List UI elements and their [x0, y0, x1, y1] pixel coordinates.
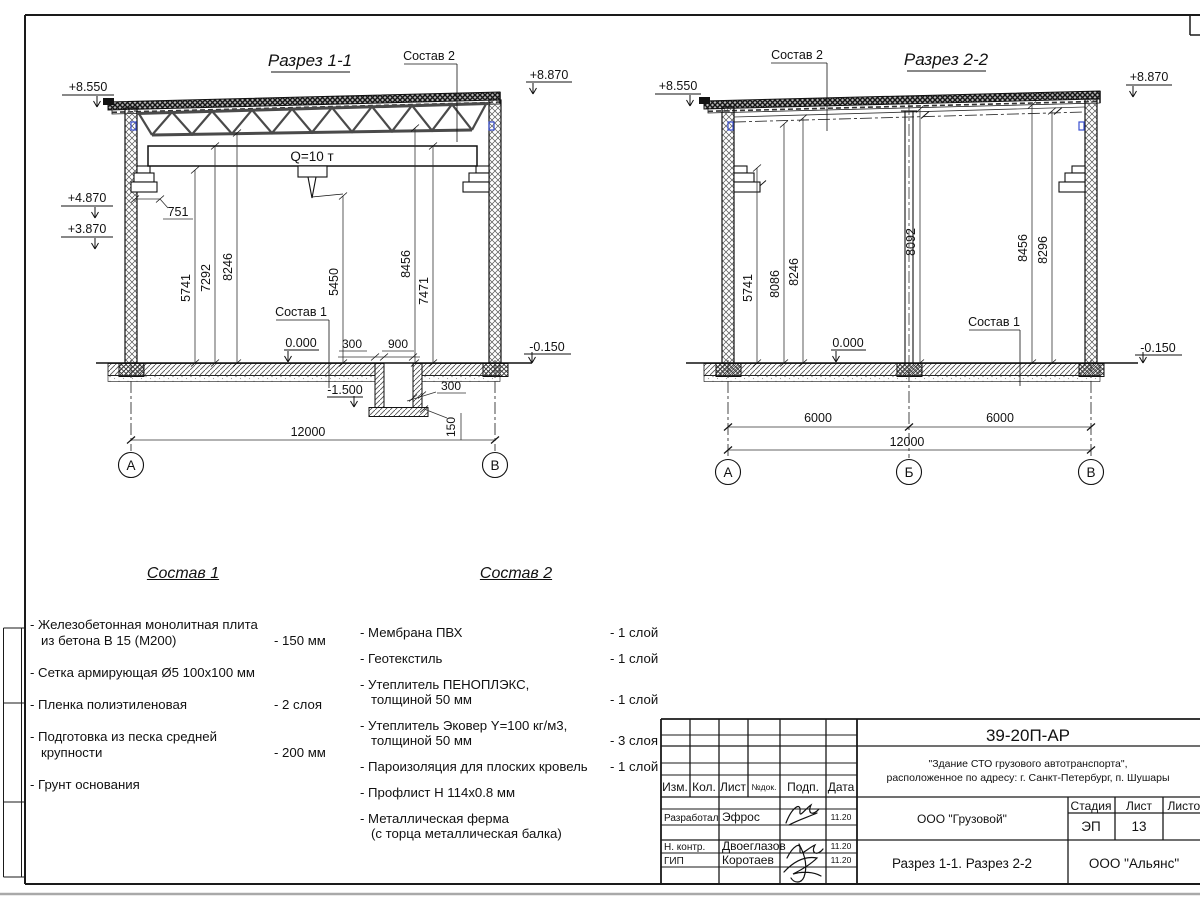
object-name-line1: "Здание СТО грузового автотранспорта",: [928, 758, 1127, 770]
section2-title: Разрез 2-2: [904, 50, 989, 69]
s2-dim-8086: 8086: [768, 270, 782, 298]
s1-dim-12000: 12000: [291, 425, 326, 439]
legend2-item-4: - Утеплитель Эковер Y=100 кг/м3,толщиной…: [360, 718, 672, 748]
s1-dim-8456: 8456: [399, 250, 413, 278]
legend1-item-2: - Сетка армирующая Ø5 100х100 мм: [30, 665, 336, 681]
company-name: ООО "Грузовой": [917, 812, 1007, 826]
row1-role: Разработал: [664, 812, 719, 824]
s1-elev-8550: +8.550: [69, 80, 108, 94]
s2-elev-8870: +8.870: [1130, 70, 1169, 84]
s1-axis-B: В: [490, 458, 499, 473]
floor-s1: [96, 363, 532, 382]
legend1-item-3: - Пленка полиэтиленовая - 2 слоя: [30, 697, 336, 713]
section-1-1-drawing: Разрез 1-1 Состав 2 Состав 1 Q=10 т +8.5…: [61, 49, 572, 478]
legend2-item-6: - Профлист Н 114х0.8 мм: [360, 785, 672, 800]
s1-elev-minus1500: -1.500: [327, 383, 362, 397]
s1-dim-900: 900: [388, 337, 408, 351]
s1-dim-8246: 8246: [221, 253, 235, 281]
roof-end-cap: [103, 98, 114, 105]
row2-name: Двоеглазов: [722, 839, 786, 853]
footing-mid-s2: [897, 364, 922, 377]
legend2-item-5: - Пароизоляция для плоских кровель - 1 с…: [360, 759, 672, 774]
footing-A: [119, 364, 144, 377]
row1-name: Эфрос: [722, 810, 760, 824]
legend2-item-1: - Мембрана ПВХ - 1 слой: [360, 625, 672, 640]
roof-end-cap-s2: [699, 97, 710, 104]
s1-elev-8870: +8.870: [530, 68, 569, 82]
s1-elev-4870: +4.870: [68, 191, 107, 205]
row3-date: 11.20: [831, 855, 852, 865]
footing-A-s2: [716, 364, 741, 377]
row3-role: ГИП: [664, 856, 684, 867]
col-header-kol: Кол.: [692, 780, 716, 794]
s1-elev-zero: 0.000: [285, 336, 316, 350]
sheet-label: Лист: [1126, 799, 1153, 813]
col-header-ndok: №док.: [752, 782, 777, 792]
legend1-item-4: - Подготовка из песка среднейкрупности -…: [30, 729, 336, 761]
legend2-item-2: - Геотекстиль - 1 слой: [360, 651, 672, 666]
footing-B: [483, 364, 508, 377]
col-header-list: Лист: [720, 780, 747, 794]
s1-dim-300b: 300: [441, 379, 461, 393]
column-A-s2: [722, 107, 734, 363]
legend1-item-5: - Грунт основания: [30, 777, 336, 793]
signature-nkontr-gip: [784, 844, 823, 882]
s2-dim-6000b: 6000: [986, 411, 1014, 425]
legend2-item-3: - Утеплитель ПЕНОПЛЭКС,толщиной 50 мм - …: [360, 677, 672, 707]
column-A: [125, 108, 137, 363]
left-edge-boxes: [4, 628, 26, 877]
s1-dim-300a: 300: [342, 337, 362, 351]
corner-stamp-box: [1190, 15, 1200, 35]
s1-axis-A: А: [126, 458, 135, 473]
s1-dim-751: 751: [168, 205, 189, 219]
company2-name: ООО "Альянс": [1089, 856, 1179, 871]
s2-axis-mid: Б: [905, 465, 914, 480]
row1-date: 11.20: [831, 812, 852, 822]
s2-elev-minus015: -0.150: [1140, 341, 1175, 355]
legend-sostav-1: Состав 1 - Железобетонная монолитная пли…: [30, 565, 336, 809]
stage-label: Стадия: [1071, 799, 1112, 813]
legend-sostav-2: Состав 2 - Мембрана ПВХ - 1 слой - Геоте…: [360, 565, 672, 852]
s1-dim-7471: 7471: [417, 277, 431, 305]
s2-leader-sostav2: Состав 2: [771, 48, 823, 62]
footing-B-s2: [1079, 364, 1104, 377]
s2-dim-6000a: 6000: [804, 411, 832, 425]
row2-date: 11.20: [831, 841, 852, 851]
s2-dim-8092: 8092: [904, 228, 918, 256]
s1-elev-minus015: -0.150: [529, 340, 564, 354]
legend1-item-1: - Железобетонная монолитная плитаиз бето…: [30, 617, 336, 649]
doc-code: 39-20П-АР: [986, 726, 1070, 745]
blue-connector-right-s2: [1079, 122, 1084, 130]
col-header-data: Дата: [828, 780, 855, 794]
s1-dim-150: 150: [444, 417, 458, 437]
sheets-label: Листов: [1168, 799, 1200, 813]
s2-elev-8550: +8.550: [659, 79, 698, 93]
column-B-s2: [1085, 99, 1097, 363]
col-header-podp: Подп.: [787, 780, 819, 794]
section-2-2-drawing: Разрез 2-2 Состав 2 Состав 1 +8.550 +8.8…: [655, 48, 1182, 485]
s2-elev-zero: 0.000: [832, 336, 863, 350]
s2-axis-B: В: [1086, 465, 1095, 480]
s1-dim-7292: 7292: [199, 264, 213, 292]
s1-crane-capacity: Q=10 т: [290, 149, 333, 164]
legend1-title: Состав 1: [30, 565, 336, 583]
s1-elev-3870: +3.870: [68, 222, 107, 236]
section1-title: Разрез 1-1: [268, 51, 352, 70]
s2-leader-sostav1: Состав 1: [968, 315, 1020, 329]
s2-dim-8296: 8296: [1036, 236, 1050, 264]
legend2-item-7: - Металлическая ферма(с торца металличес…: [360, 811, 672, 841]
sheet-number: 13: [1131, 819, 1146, 834]
s1-dim-5741: 5741: [179, 274, 193, 302]
s1-leader-sostav1: Состав 1: [275, 305, 327, 319]
title-block: 39-20П-АР "Здание СТО грузового автотран…: [661, 719, 1200, 884]
signatures: [784, 805, 823, 882]
object-name-line2: расположенное по адресу: г. Санкт-Петерб…: [887, 772, 1170, 784]
inspection-pit: [369, 364, 428, 417]
s2-axis-A: А: [723, 465, 732, 480]
s2-dim-12000: 12000: [890, 435, 925, 449]
s2-dim-8246: 8246: [787, 258, 801, 286]
s2-dim-5741: 5741: [741, 274, 755, 302]
crane-hook: [298, 166, 343, 198]
sheet-title: Разрез 1-1. Разрез 2-2: [892, 856, 1032, 871]
s1-leader-sostav2: Состав 2: [403, 49, 455, 63]
legend2-title: Состав 2: [360, 565, 672, 583]
s2-dim-8456: 8456: [1016, 234, 1030, 262]
s1-dim-5450: 5450: [327, 268, 341, 296]
drawing-sheet: Разрез 1-1 Состав 2 Состав 1 Q=10 т +8.5…: [0, 0, 1200, 900]
row3-name: Коротаев: [722, 853, 774, 867]
signature-razrabotal: [786, 805, 819, 825]
column-B: [489, 100, 501, 363]
stage-value: ЭП: [1081, 819, 1100, 834]
